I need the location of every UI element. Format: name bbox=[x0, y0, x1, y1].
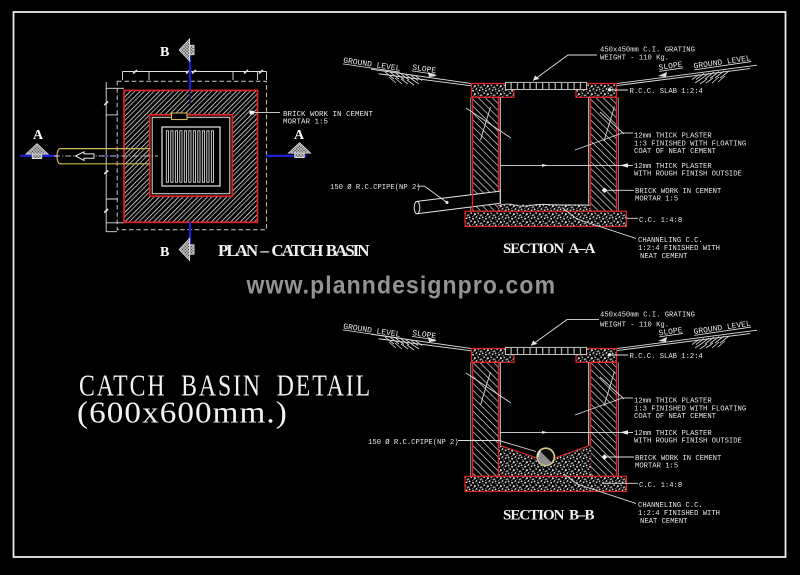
svg-text:C.C. 1:4:8: C.C. 1:4:8 bbox=[639, 217, 682, 225]
svg-text:MORTAR 1:5: MORTAR 1:5 bbox=[635, 196, 678, 204]
svg-text:www.planndesignpro.com: www.planndesignpro.com bbox=[246, 272, 557, 300]
svg-text:CHANNELING C.C.: CHANNELING C.C. bbox=[638, 502, 703, 510]
svg-text:WITH ROUGH FINISH OUTSIDE: WITH ROUGH FINISH OUTSIDE bbox=[634, 171, 742, 179]
svg-text:150 Ø R.C.CPIPE(NP 2): 150 Ø R.C.CPIPE(NP 2) bbox=[368, 438, 459, 447]
svg-text:CHANNELING C.C.: CHANNELING C.C. bbox=[638, 237, 703, 245]
svg-text:A: A bbox=[294, 128, 305, 143]
svg-text:SECTION A–A: SECTION A–A bbox=[503, 241, 597, 257]
svg-text:R.C.C. SLAB 1:2:4: R.C.C. SLAB 1:2:4 bbox=[630, 353, 703, 361]
svg-text:MORTAR 1:5: MORTAR 1:5 bbox=[635, 462, 678, 470]
svg-text:MORTAR 1:5: MORTAR 1:5 bbox=[283, 119, 329, 127]
svg-text:1:3 FINISHED WITH FLOATING: 1:3 FINISHED WITH FLOATING bbox=[634, 140, 746, 148]
svg-text:WEIGHT - 110 Kg.: WEIGHT - 110 Kg. bbox=[600, 55, 669, 63]
svg-text:WEIGHT - 110 Kg.: WEIGHT - 110 Kg. bbox=[600, 322, 669, 330]
svg-text:150 Ø R.C.CPIPE(NP 2): 150 Ø R.C.CPIPE(NP 2) bbox=[330, 183, 421, 192]
svg-text:450x450mm C.I. GRATING: 450x450mm C.I. GRATING bbox=[600, 47, 695, 55]
svg-text:12mm THICK PLASTER: 12mm THICK PLASTER bbox=[634, 133, 712, 141]
svg-text:SECTION B–B: SECTION B–B bbox=[503, 508, 596, 524]
svg-text:(600x600mm.): (600x600mm.) bbox=[77, 394, 288, 429]
svg-text:12mm THICK PLASTER: 12mm THICK PLASTER bbox=[634, 163, 712, 171]
svg-text:NEAT CEMENT: NEAT CEMENT bbox=[640, 518, 688, 526]
svg-text:B: B bbox=[160, 45, 169, 60]
svg-text:1:2:4 FINISHED WITH: 1:2:4 FINISHED WITH bbox=[638, 245, 720, 253]
svg-text:COAT OF NEAT CEMENT: COAT OF NEAT CEMENT bbox=[634, 413, 717, 421]
svg-text:1:2:4 FINISHED WITH: 1:2:4 FINISHED WITH bbox=[638, 510, 720, 518]
svg-text:COAT OF NEAT CEMENT: COAT OF NEAT CEMENT bbox=[634, 148, 717, 156]
svg-text:B: B bbox=[160, 245, 169, 260]
svg-text:12mm THICK PLASTER: 12mm THICK PLASTER bbox=[634, 398, 712, 406]
svg-text:PLAN – CATCH BASIN: PLAN – CATCH BASIN bbox=[218, 241, 371, 260]
svg-text:450x450mm C.I. GRATING: 450x450mm C.I. GRATING bbox=[600, 312, 695, 320]
svg-text:NEAT CEMENT: NEAT CEMENT bbox=[640, 253, 688, 261]
svg-text:1:3 FINISHED WITH FLOATING: 1:3 FINISHED WITH FLOATING bbox=[634, 405, 746, 413]
svg-text:A: A bbox=[33, 128, 44, 143]
svg-text:C.C. 1:4:8: C.C. 1:4:8 bbox=[639, 482, 682, 490]
svg-text:WITH ROUGH FINISH OUTSIDE: WITH ROUGH FINISH OUTSIDE bbox=[634, 438, 742, 446]
svg-text:R.C.C. SLAB 1:2:4: R.C.C. SLAB 1:2:4 bbox=[630, 88, 703, 96]
svg-text:12mm THICK PLASTER: 12mm THICK PLASTER bbox=[634, 430, 712, 438]
